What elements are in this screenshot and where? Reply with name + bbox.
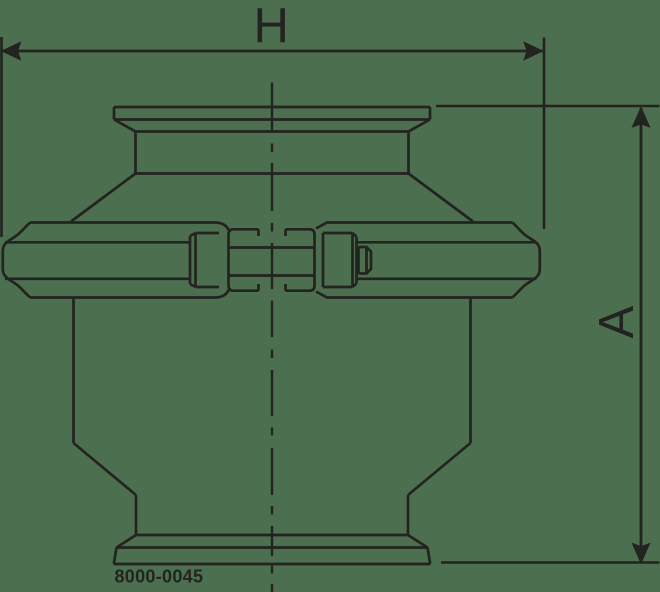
svg-text:H: H: [254, 0, 289, 53]
svg-text:8000-0045: 8000-0045: [115, 567, 204, 587]
svg-text:A: A: [590, 306, 644, 339]
